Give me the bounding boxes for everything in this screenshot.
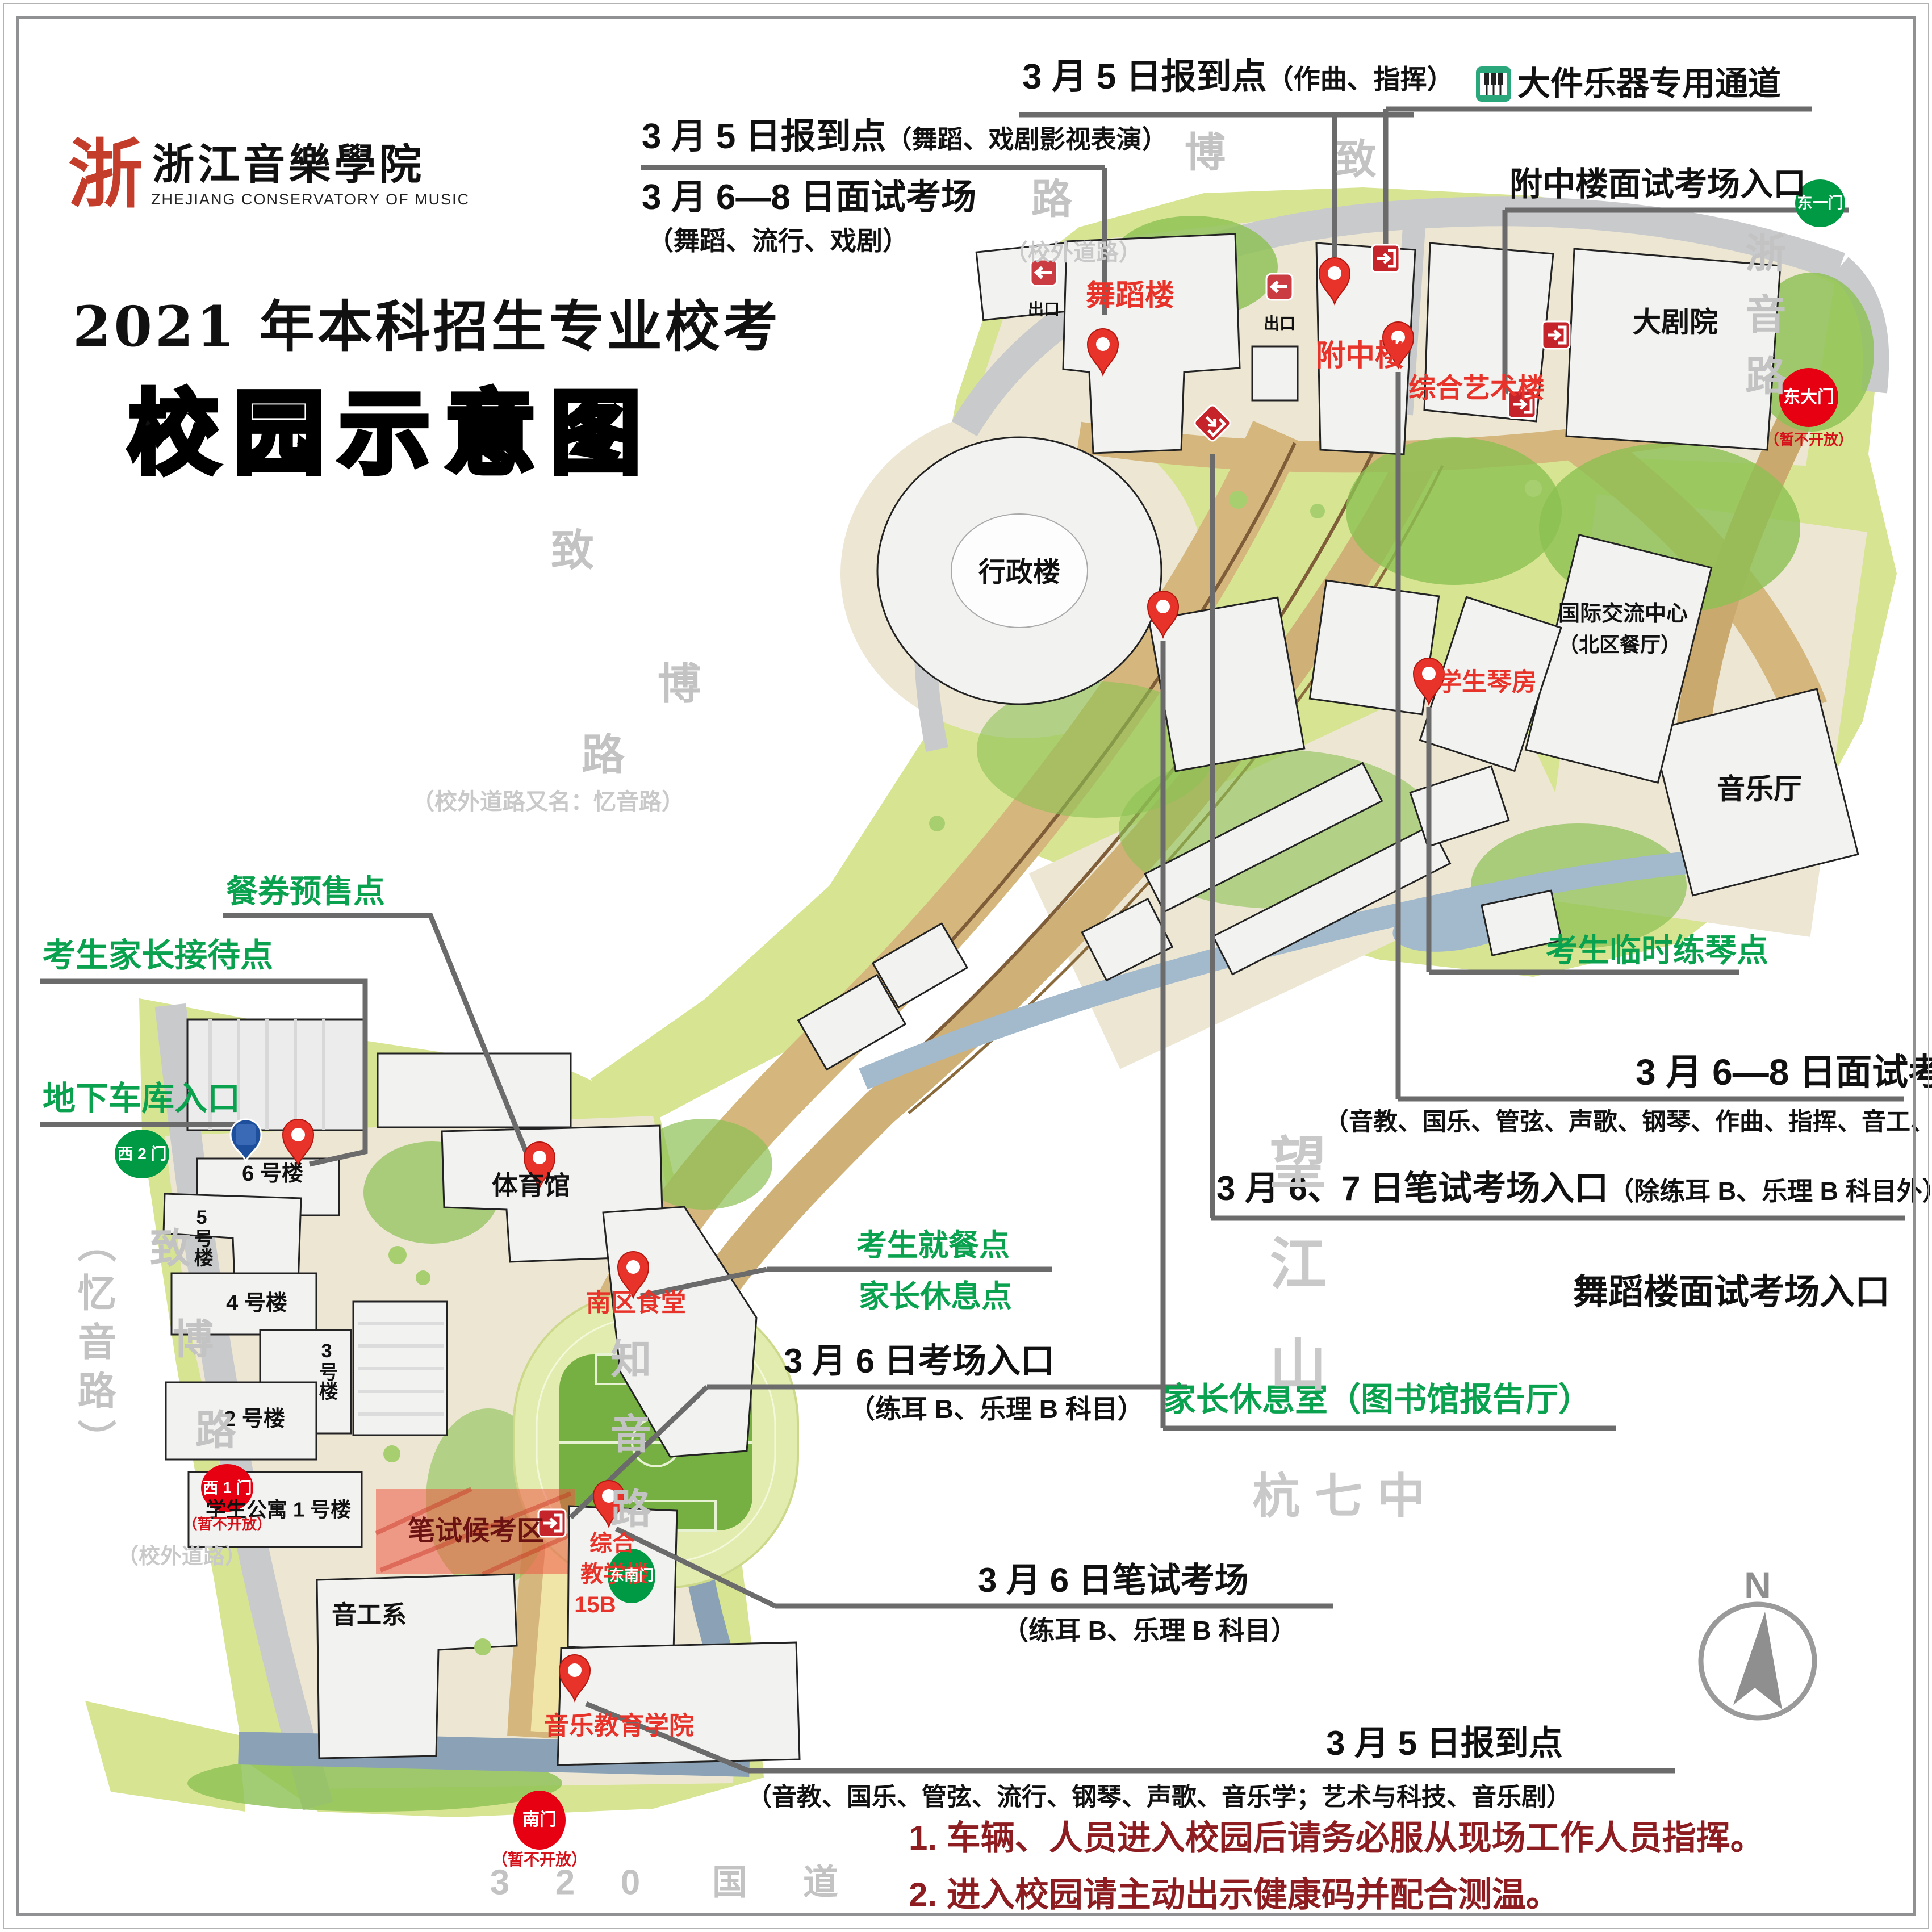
road-mid-char-bo: 博 [658, 659, 701, 709]
road-top-char-lu: 路 [1031, 177, 1072, 224]
building-nw-row [378, 1053, 571, 1127]
building-small [1252, 346, 1298, 400]
callout-mar5-checkin-main-sub: （音教、国乐、管弦、流行、钢琴、声歌、音乐学；艺术与科技、音乐剧） [747, 1783, 1571, 1812]
logo-en: ZHEJIANG CONSERVATORY OF MUSIC [151, 191, 470, 208]
label-building-3: 3号楼 [315, 1340, 337, 1400]
label-written-exam-waiting: 笔试候考区 [408, 1515, 544, 1546]
label-student-piano-rooms: 学生琴房 [1437, 668, 1537, 697]
callout-mar6-exam-entrance: 3 月 6 日考场入口 [784, 1341, 1055, 1381]
callout-mar6-exam-entrance-sub: （练耳 B、乐理 B 科目） [849, 1394, 1144, 1424]
label-intl-exchange: 国际交流中心 [1558, 602, 1688, 627]
callout-mar68-interview-dance-sub: （舞蹈、流行、戏剧） [647, 226, 909, 256]
label-grand-theater: 大剧院 [1633, 306, 1718, 339]
building-music-education [558, 1642, 800, 1765]
logo-mark: 浙 [68, 132, 143, 218]
road-west-alt-name: （忆音路） [71, 1224, 115, 1468]
road-mid-note: （校外道路又名：忆音路） [412, 789, 684, 815]
callout-underground-garage: 地下车库入口 [43, 1080, 240, 1118]
gate-southeast-label: 东南门 [609, 1567, 654, 1584]
gate-west1-label: 西 1 门 [202, 1479, 252, 1497]
campus-map-poster: 浙 浙江音樂學院 ZHEJIANG CONSERVATORY OF MUSIC … [0, 0, 1932, 1932]
callout-mar5-checkin-composition: 3 月 5 日报到点（作曲、指挥） [1022, 57, 1454, 97]
label-exit-2: 出口 [1264, 315, 1295, 333]
callout-parent-lounge: 家长休息室（图书馆报告厅） [1163, 1381, 1591, 1419]
callout-parent-rest: 家长休息点 [859, 1279, 1012, 1314]
callout-meal-ticket-presale: 餐券预售点 [226, 873, 385, 910]
gate-east1-label: 东一门 [1797, 194, 1843, 212]
label-music-education: 音乐教育学院 [544, 1712, 694, 1741]
road-west-char-lu: 路 [195, 1408, 236, 1455]
road-west-note: （校外道路） [117, 1545, 246, 1570]
label-admin-building: 行政楼 [978, 557, 1060, 588]
gate-east-main-note: （暂不开放） [1764, 432, 1853, 449]
notice-line-2: 2. 进入校园请主动出示健康码并配合测温。 [909, 1875, 1560, 1914]
label-building-4: 4 号楼 [226, 1291, 287, 1316]
gate-east-main-label: 东大门 [1783, 388, 1834, 408]
building-misc [1310, 580, 1438, 714]
label-concert-hall: 音乐厅 [1717, 773, 1802, 806]
road-west-char-zhi: 致 [150, 1226, 191, 1273]
label-building-6: 6 号楼 [242, 1162, 303, 1187]
road-top-note: （校外道路） [1005, 240, 1141, 266]
area-hangqizhong: 杭七中 [1252, 1469, 1440, 1524]
gate-west1-note: （暂不开放） [183, 1516, 271, 1533]
label-exit-1: 出口 [1028, 300, 1060, 319]
label-building-5: 5号楼 [190, 1207, 212, 1267]
callout-mar6-written-exam: 3 月 6 日笔试考场 [978, 1561, 1249, 1600]
road-320-char-guo: 国 [712, 1862, 747, 1902]
page-title-line1: 2021 年本科招生专业校考 [73, 295, 781, 359]
road-top-char-bo: 博 [1185, 130, 1226, 177]
callout-mar68-interview-sub: （音教、国乐、管弦、声歌、钢琴、作曲、指挥、音工、音乐学） [1324, 1109, 1932, 1136]
callout-candidate-dining: 考生就餐点 [856, 1228, 1010, 1263]
label-music-engineering: 音工系 [332, 1601, 407, 1630]
callout-mar5-checkin-main: 3 月 5 日报到点 [1326, 1724, 1563, 1763]
road-320-char-3: 3 [490, 1862, 509, 1902]
road-mid-char-lu: 路 [582, 730, 625, 780]
road-zhiyin: 知音路 [603, 1337, 650, 1562]
label-dance-building: 舞蹈楼 [1086, 279, 1174, 313]
road-mid-char-zhi: 致 [551, 526, 594, 575]
label-affiliated-school: 附中楼 [1316, 340, 1404, 374]
gate-south-label: 南门 [522, 1810, 557, 1830]
road-zheyin: 浙音路 [1738, 232, 1785, 416]
callout-mar6-written-exam-sub: （练耳 B、乐理 B 科目） [1002, 1616, 1297, 1646]
callout-temp-practice-point: 考生临时练琴点 [1546, 932, 1768, 969]
road-320-char-0: 0 [621, 1862, 640, 1902]
notice-line-1: 1. 车辆、人员进入校园后请务必服从现场工作人员指挥。 [909, 1818, 1764, 1858]
area-wangjiangshan: 望江山 [1260, 1133, 1325, 1436]
page-title-line2: 校园示意图 [128, 382, 656, 486]
label-gymnasium: 体育馆 [492, 1171, 570, 1201]
callout-mar5-checkin-dance: 3 月 5 日报到点（舞蹈、戏剧影视表演） [642, 116, 1168, 157]
label-comprehensive-teaching-3: 15B [574, 1592, 616, 1618]
label-south-canteen: 南区食堂 [586, 1289, 686, 1318]
callout-affiliated-entrance: 附中楼面试考场入口 [1509, 166, 1806, 204]
callout-mar68-interview-dance: 3 月 6—8 日面试考场 [642, 177, 976, 218]
callout-parent-reception: 考生家长接待点 [43, 937, 273, 975]
compass-north-label: N [1744, 1564, 1771, 1607]
callout-mar68-interview: 3 月 6—8 日面试考场 [1636, 1052, 1932, 1094]
compass [1701, 1604, 1814, 1718]
road-top-char-zhi: 致 [1336, 137, 1377, 184]
callout-dance-interview-entrance: 舞蹈楼面试考场入口 [1573, 1272, 1890, 1312]
label-comprehensive-art: 综合艺术楼 [1408, 373, 1545, 404]
piano-icon [1476, 66, 1511, 102]
gate-west2-label: 西 2 门 [117, 1145, 166, 1163]
label-north-canteen: （北区餐厅） [1558, 633, 1681, 656]
road-320-char-dao: 道 [803, 1862, 838, 1902]
callout-large-instrument-channel: 大件乐器专用通道 [1517, 65, 1781, 103]
logo-cn: 浙江音樂學院 [152, 141, 425, 189]
road-west-char-bo: 博 [173, 1317, 214, 1364]
road-320-char-2: 2 [555, 1862, 575, 1902]
